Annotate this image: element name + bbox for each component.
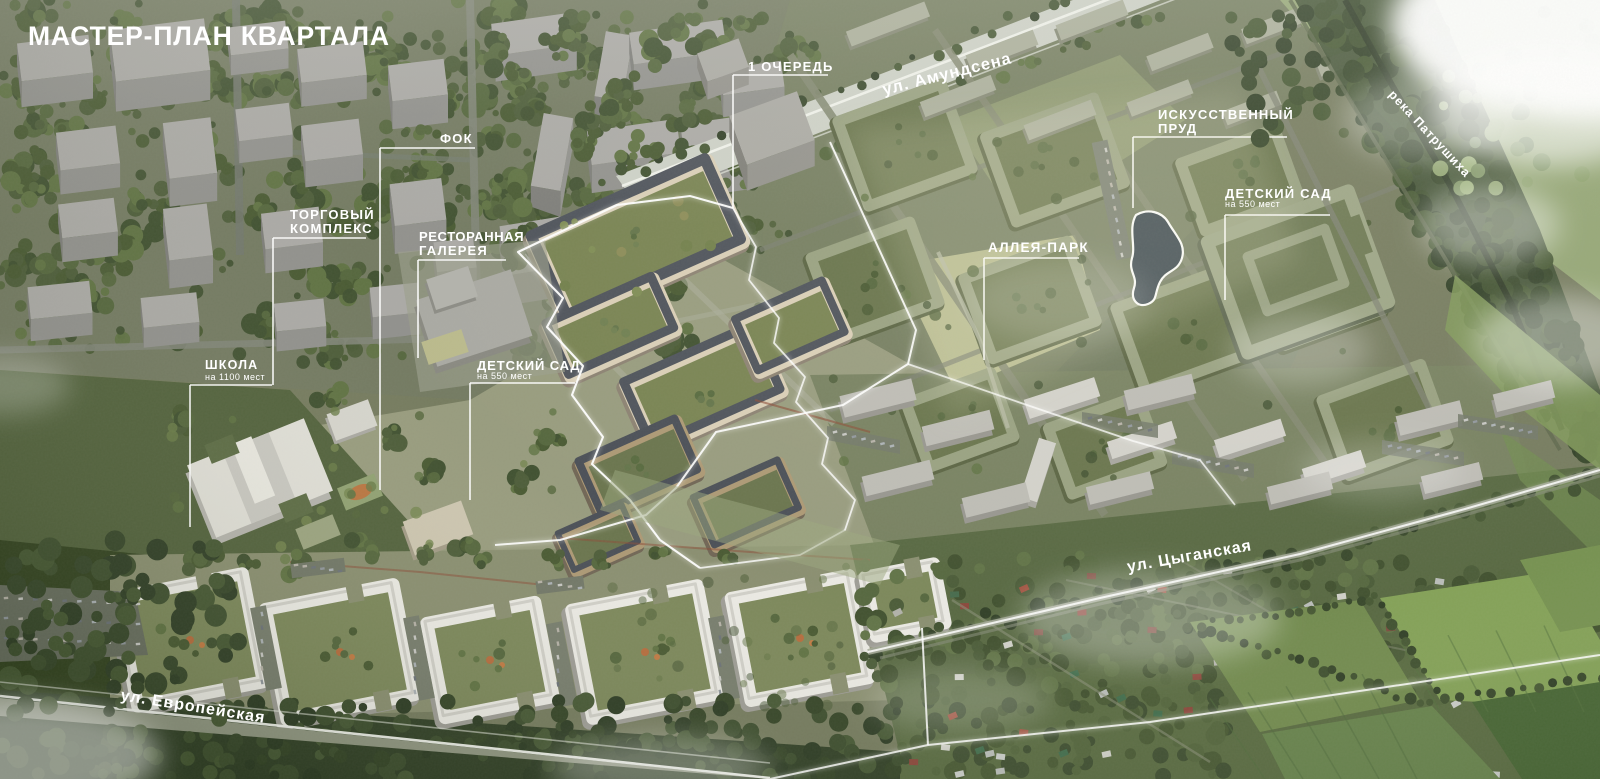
svg-text:ТОРГОВЫЙ: ТОРГОВЫЙ (290, 207, 375, 222)
svg-text:ИСКУССТВЕННЫЙ: ИСКУССТВЕННЫЙ (1158, 107, 1294, 122)
svg-text:ШКОЛА: ШКОЛА (205, 358, 258, 372)
svg-text:1 ОЧЕРЕДЬ: 1 ОЧЕРЕДЬ (748, 59, 834, 74)
svg-text:ГАЛЕРЕЯ: ГАЛЕРЕЯ (419, 243, 488, 258)
svg-text:на 550 мест: на 550 мест (477, 371, 532, 381)
svg-text:ФОК: ФОК (440, 131, 473, 146)
svg-text:ПРУД: ПРУД (1158, 121, 1197, 136)
svg-text:РЕСТОРАННАЯ: РЕСТОРАННАЯ (419, 229, 524, 244)
svg-text:АЛЛЕЯ-ПАРК: АЛЛЕЯ-ПАРК (988, 240, 1089, 255)
svg-text:КОМПЛЕКС: КОМПЛЕКС (290, 221, 373, 236)
svg-text:МАСТЕР-ПЛАН КВАРТАЛА: МАСТЕР-ПЛАН КВАРТАЛА (28, 21, 390, 51)
svg-text:на 550 мест: на 550 мест (1225, 199, 1280, 209)
svg-text:на 1100 мест: на 1100 мест (205, 372, 265, 382)
